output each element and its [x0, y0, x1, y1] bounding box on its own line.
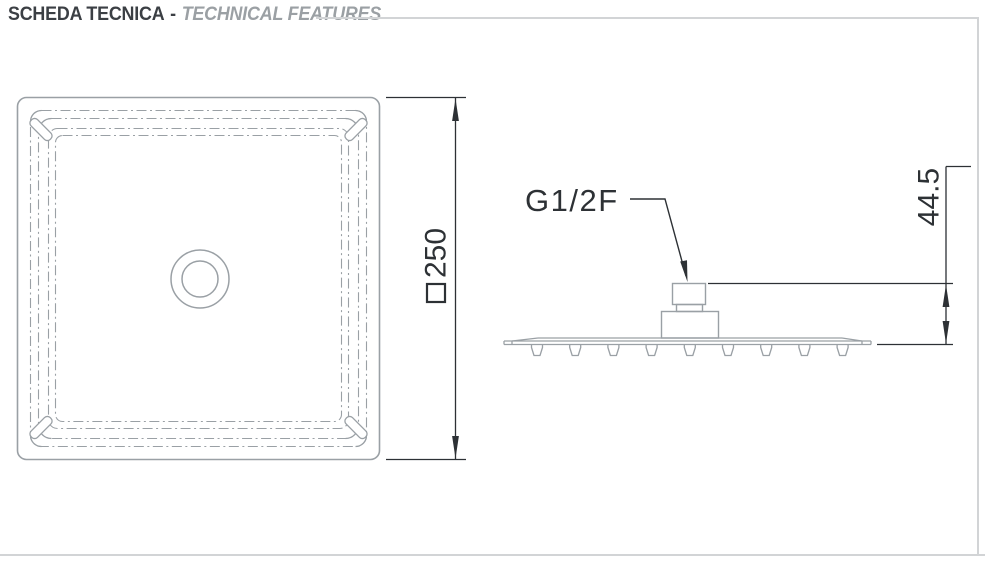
- arrowhead-up: [452, 99, 459, 122]
- nozzles: [532, 345, 849, 356]
- connector-fitting: [673, 284, 706, 305]
- connector-neck: [677, 305, 703, 312]
- arrowhead-down: [943, 321, 950, 344]
- connector-assembly: [662, 284, 719, 339]
- corner-chamfer-marks: [28, 117, 368, 440]
- side-view-drawing: [504, 284, 871, 356]
- technical-sheet-page: SCHEDA TECNICA - TECHNICAL FEATURES: [0, 0, 1000, 578]
- chamfer-bottom-right: [343, 415, 368, 440]
- connection-callout: G1/2F: [525, 183, 688, 282]
- connection-label: G1/2F: [525, 183, 619, 218]
- callout-arrowhead: [680, 260, 687, 282]
- chamfer-top-left: [28, 117, 53, 142]
- arrowhead-up: [943, 285, 950, 308]
- arrowhead-down: [452, 436, 459, 459]
- chamfer-bottom-left: [28, 415, 53, 440]
- hidden-edge-ring-1: [31, 111, 367, 447]
- dimension-44-5: 44.5: [708, 167, 971, 345]
- chamfer-top-right: [343, 117, 368, 142]
- hidden-edge-ring-4: [56, 136, 342, 422]
- center-inlet-circle-inner: [182, 261, 218, 297]
- hidden-edge-ring-3: [49, 129, 349, 429]
- top-view-outer-edge: [18, 98, 380, 460]
- hidden-edge-ring-2: [39, 119, 359, 439]
- dimension-250-value: 250: [420, 228, 453, 278]
- technical-drawing: 250 G1/2F: [0, 0, 1000, 578]
- dimension-250: 250: [386, 98, 466, 460]
- callout-leader-line: [630, 199, 686, 276]
- top-view-drawing: [18, 98, 380, 460]
- inner-rim-corner-arcs: [31, 111, 367, 447]
- dimension-44-5-value: 44.5: [913, 168, 946, 226]
- center-inlet-circle-outer: [171, 250, 229, 308]
- mounting-block: [662, 312, 719, 339]
- shower-plate: [504, 338, 871, 356]
- square-dimension-symbol: [427, 284, 445, 302]
